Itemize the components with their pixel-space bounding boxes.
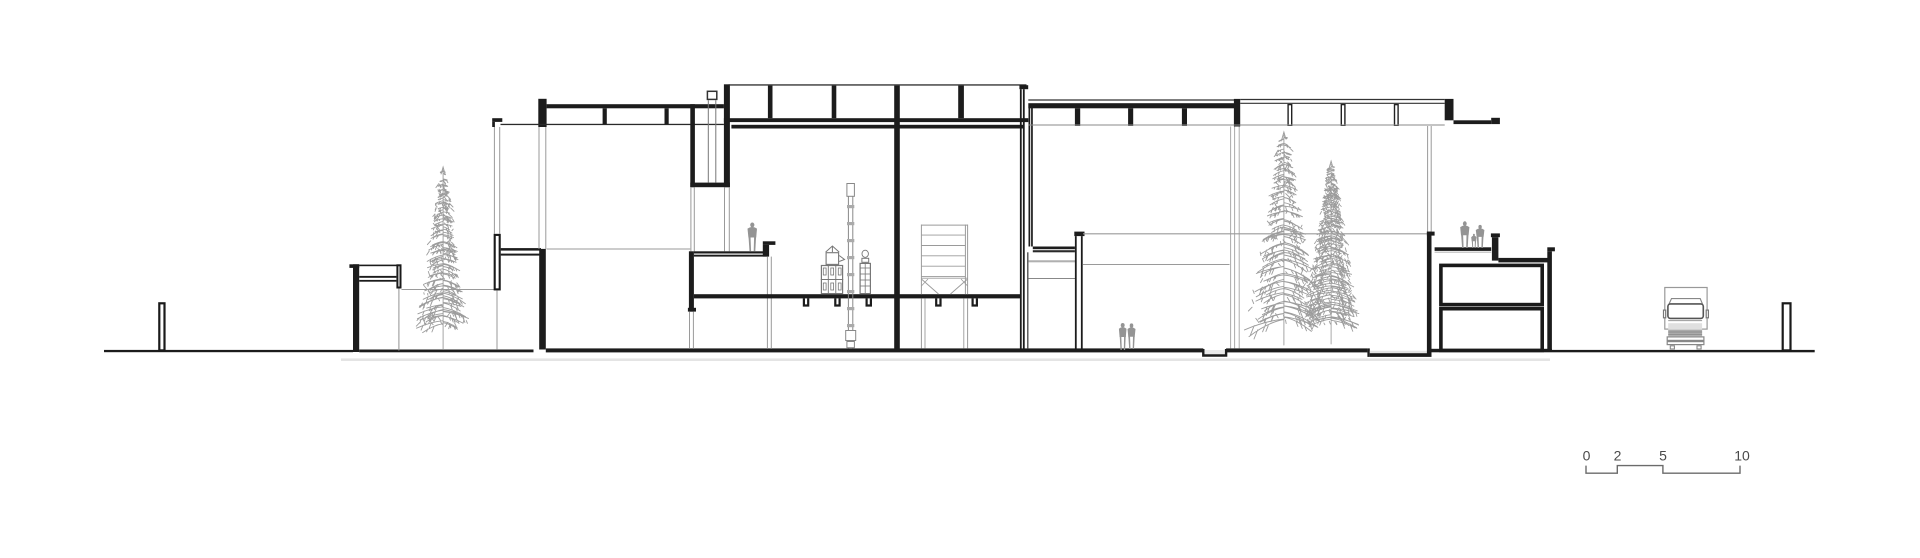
svg-text:10: 10 [1734,448,1750,464]
svg-text:5: 5 [1659,448,1667,464]
svg-text:2: 2 [1614,448,1622,464]
svg-text:0: 0 [1583,448,1591,464]
